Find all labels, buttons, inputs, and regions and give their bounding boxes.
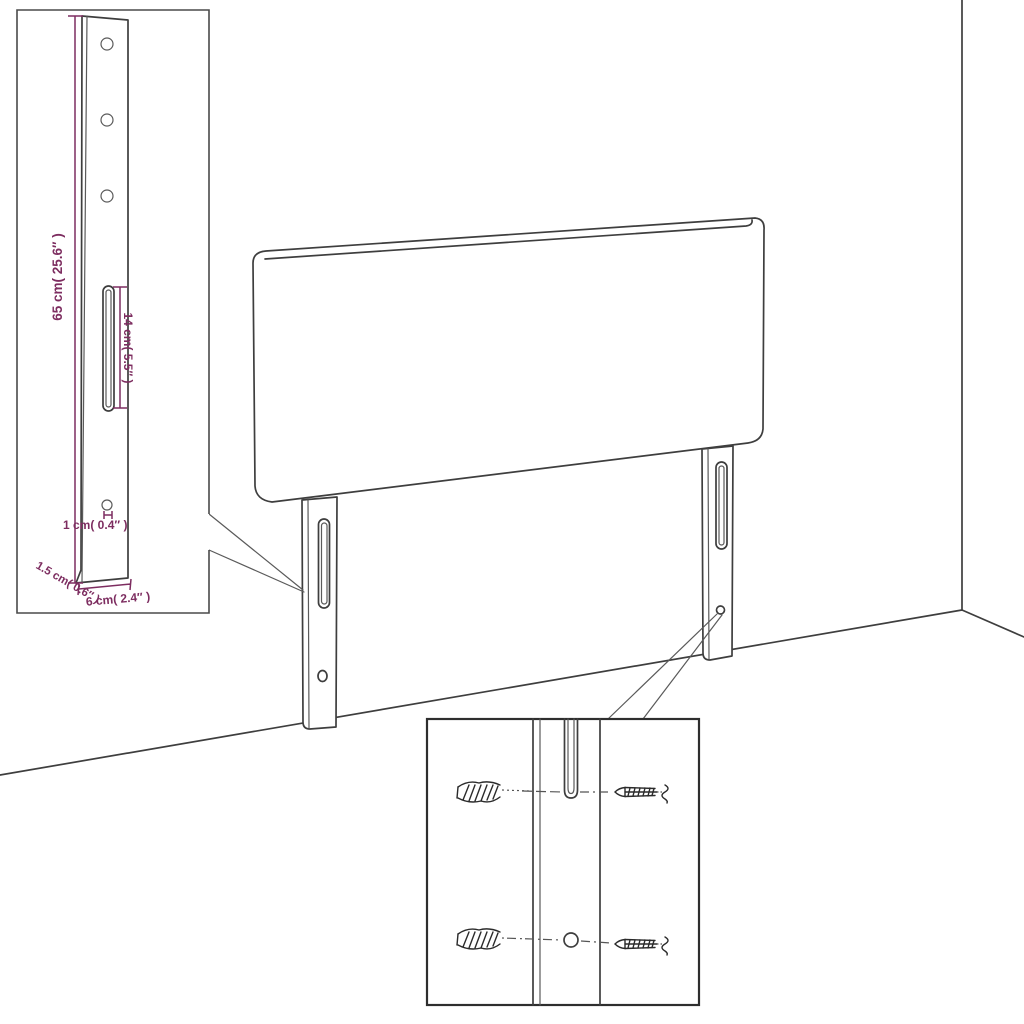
dim-label-65: 65 cm( 25.6″ ) (50, 233, 65, 321)
callout-wedge-left (209, 514, 304, 592)
callout-line-2 (643, 615, 722, 719)
mounting-detail-inset (427, 719, 699, 1005)
diagram-page: 65 cm( 25.6″ ) 14 cm( 5.5″ ) 1 cm( 0.4″ … (0, 0, 1024, 1024)
headboard-leg-left (302, 497, 337, 729)
callout-line-3 (209, 514, 303, 590)
dim-label-1cm: 1 cm( 0.4″ ) (63, 518, 127, 532)
leg-dimension-inset: 65 cm( 25.6″ ) 14 cm( 5.5″ ) 1 cm( 0.4″ … (17, 10, 209, 613)
inset-box-bottom (427, 719, 699, 1005)
floor-line-right (962, 610, 1024, 637)
headboard-outline (253, 218, 764, 502)
leg-left-outline (302, 497, 337, 729)
leg-right-outline (702, 446, 733, 660)
headboard-leg-right (702, 446, 733, 660)
assembly-diagram: 65 cm( 25.6″ ) 14 cm( 5.5″ ) 1 cm( 0.4″ … (0, 0, 1024, 1024)
dim-label-14: 14 cm( 5.5″ ) (121, 312, 135, 383)
callout-line-4 (209, 550, 304, 592)
callout-line-1 (608, 614, 717, 719)
headboard-panel (253, 218, 764, 502)
